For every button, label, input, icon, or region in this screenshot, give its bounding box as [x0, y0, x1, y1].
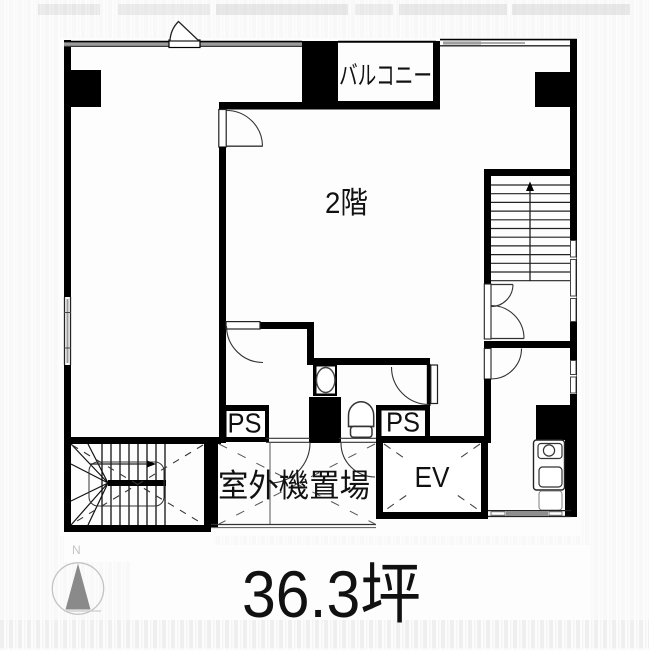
svg-text:室外機置場: 室外機置場	[218, 468, 370, 504]
svg-text:PS: PS	[386, 407, 420, 438]
svg-text:2階: 2階	[325, 187, 368, 220]
svg-text:36.3坪: 36.3坪	[242, 557, 421, 631]
svg-text:N: N	[72, 543, 81, 557]
svg-text:バルコニー: バルコニー	[339, 61, 432, 91]
svg-text:PS: PS	[228, 408, 262, 439]
svg-text:EV: EV	[415, 462, 451, 494]
